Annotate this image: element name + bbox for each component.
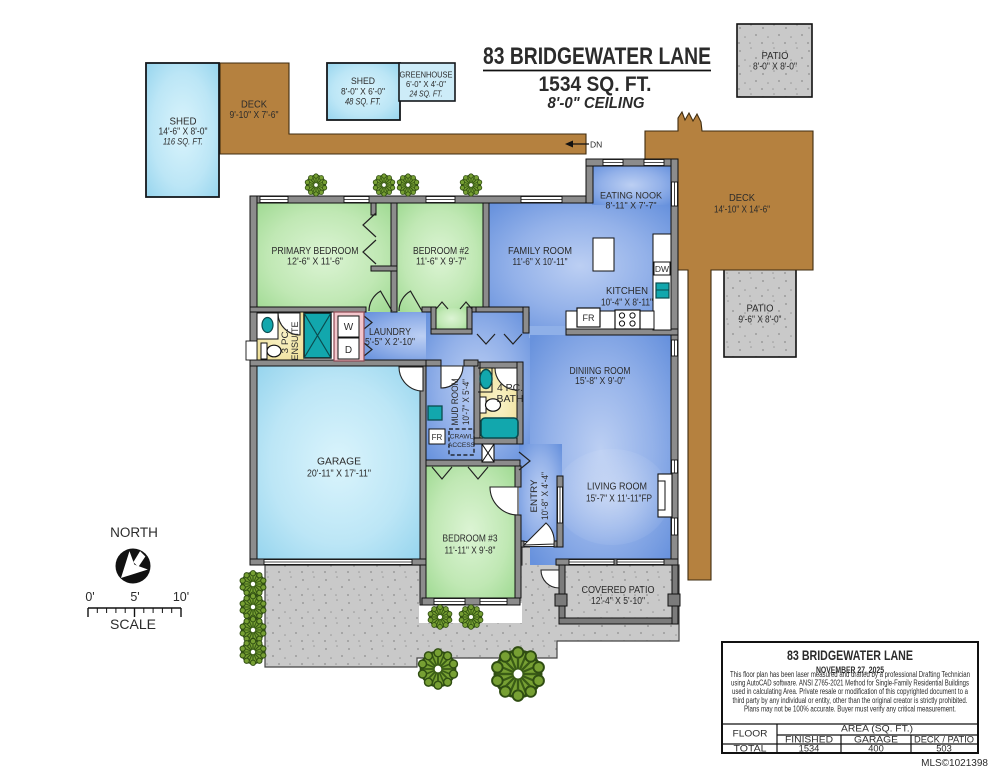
- svg-text:20'-11" X 17'-11": 20'-11" X 17'-11": [307, 468, 371, 480]
- svg-text:116 SQ. FT.: 116 SQ. FT.: [163, 137, 203, 148]
- svg-text:DN: DN: [590, 140, 602, 150]
- svg-text:W: W: [344, 322, 354, 333]
- svg-text:GREENHOUSE: GREENHOUSE: [400, 70, 453, 80]
- svg-text:Plans may not be 100% accurate: Plans may not be 100% accurate. Buyer mu…: [744, 704, 956, 713]
- svg-text:DECK: DECK: [729, 193, 755, 204]
- svg-text:48 SQ. FT.: 48 SQ. FT.: [345, 97, 381, 107]
- svg-text:DECK: DECK: [241, 100, 267, 111]
- svg-text:ENTRY: ENTRY: [529, 480, 539, 513]
- svg-text:503: 503: [936, 744, 952, 754]
- svg-text:1534: 1534: [799, 744, 820, 754]
- svg-text:3 PC.: 3 PC.: [280, 329, 290, 354]
- svg-text:KITCHEN: KITCHEN: [606, 286, 648, 297]
- svg-text:LIVING ROOM: LIVING ROOM: [587, 482, 647, 493]
- svg-text:83 BRIDGEWATER LANE: 83 BRIDGEWATER LANE: [787, 647, 913, 663]
- svg-text:6'-0" X 4'-0": 6'-0" X 4'-0": [406, 79, 446, 89]
- svg-text:5'-5" X 2'-10": 5'-5" X 2'-10": [365, 337, 415, 348]
- svg-text:ENSUITE: ENSUITE: [290, 322, 300, 361]
- svg-text:400: 400: [868, 744, 884, 754]
- svg-text:5': 5': [130, 590, 139, 604]
- svg-text:PATIO: PATIO: [747, 304, 774, 315]
- svg-text:8'-0" CEILING: 8'-0" CEILING: [548, 95, 645, 112]
- svg-text:0': 0': [85, 590, 94, 604]
- svg-text:DW: DW: [655, 264, 669, 274]
- svg-text:10': 10': [173, 590, 189, 604]
- svg-text:15'-7" X 11'-11"FP: 15'-7" X 11'-11"FP: [586, 494, 652, 505]
- svg-text:1534 SQ. FT.: 1534 SQ. FT.: [539, 73, 652, 96]
- svg-text:GARAGE: GARAGE: [317, 456, 361, 468]
- svg-text:BATH: BATH: [497, 394, 524, 405]
- svg-text:MLS©1021398: MLS©1021398: [921, 758, 988, 768]
- svg-text:15'-8" X 9'-0": 15'-8" X 9'-0": [575, 376, 625, 387]
- svg-text:11'-11" X 9'-8": 11'-11" X 9'-8": [445, 545, 496, 557]
- svg-text:FLOOR: FLOOR: [733, 729, 768, 739]
- svg-text:NORTH: NORTH: [110, 525, 158, 540]
- svg-text:9'-10" X 7'-6": 9'-10" X 7'-6": [230, 110, 279, 121]
- svg-text:SCALE: SCALE: [110, 616, 156, 632]
- svg-text:11'-6" X 10'-11": 11'-6" X 10'-11": [513, 256, 568, 268]
- svg-text:D: D: [345, 345, 352, 356]
- svg-text:FR: FR: [583, 313, 595, 323]
- svg-text:FR: FR: [432, 433, 443, 442]
- svg-text:EATING NOOK: EATING NOOK: [600, 191, 663, 201]
- svg-text:14'-10" X 14'-6": 14'-10" X 14'-6": [714, 205, 770, 216]
- svg-text:10'-4" X 8'-11": 10'-4" X 8'-11": [601, 298, 653, 309]
- svg-text:TOTAL: TOTAL: [734, 744, 767, 754]
- svg-text:COVERED PATIO: COVERED PATIO: [582, 585, 655, 596]
- svg-text:8'-0" X 8'-0": 8'-0" X 8'-0": [753, 62, 797, 73]
- svg-text:PATIO: PATIO: [762, 51, 789, 62]
- svg-text:83 BRIDGEWATER LANE: 83 BRIDGEWATER LANE: [483, 43, 711, 70]
- svg-text:AREA (SQ. FT.): AREA (SQ. FT.): [841, 724, 913, 734]
- svg-text:SHED: SHED: [351, 76, 375, 87]
- svg-text:24 SQ. FT.: 24 SQ. FT.: [409, 89, 443, 99]
- svg-text:10'-7" X 5'-4": 10'-7" X 5'-4": [461, 379, 471, 425]
- svg-text:12'-4" X 5'-10": 12'-4" X 5'-10": [591, 596, 645, 607]
- svg-text:CRAWL: CRAWL: [450, 434, 474, 441]
- svg-text:8'-11" X 7'-7": 8'-11" X 7'-7": [606, 201, 657, 211]
- svg-text:BEDROOM #3: BEDROOM #3: [443, 533, 498, 545]
- svg-text:9'-6" X 8'-0": 9'-6" X 8'-0": [739, 315, 782, 326]
- svg-text:ACCESS: ACCESS: [448, 442, 476, 449]
- svg-text:4 PC.: 4 PC.: [497, 383, 523, 394]
- svg-text:11'-6" X 9'-7": 11'-6" X 9'-7": [416, 256, 466, 268]
- svg-text:MUD ROOM: MUD ROOM: [450, 379, 460, 426]
- svg-text:10'-8" X 4'-4": 10'-8" X 4'-4": [540, 472, 550, 520]
- svg-text:12'-6" X 11'-6": 12'-6" X 11'-6": [287, 256, 343, 268]
